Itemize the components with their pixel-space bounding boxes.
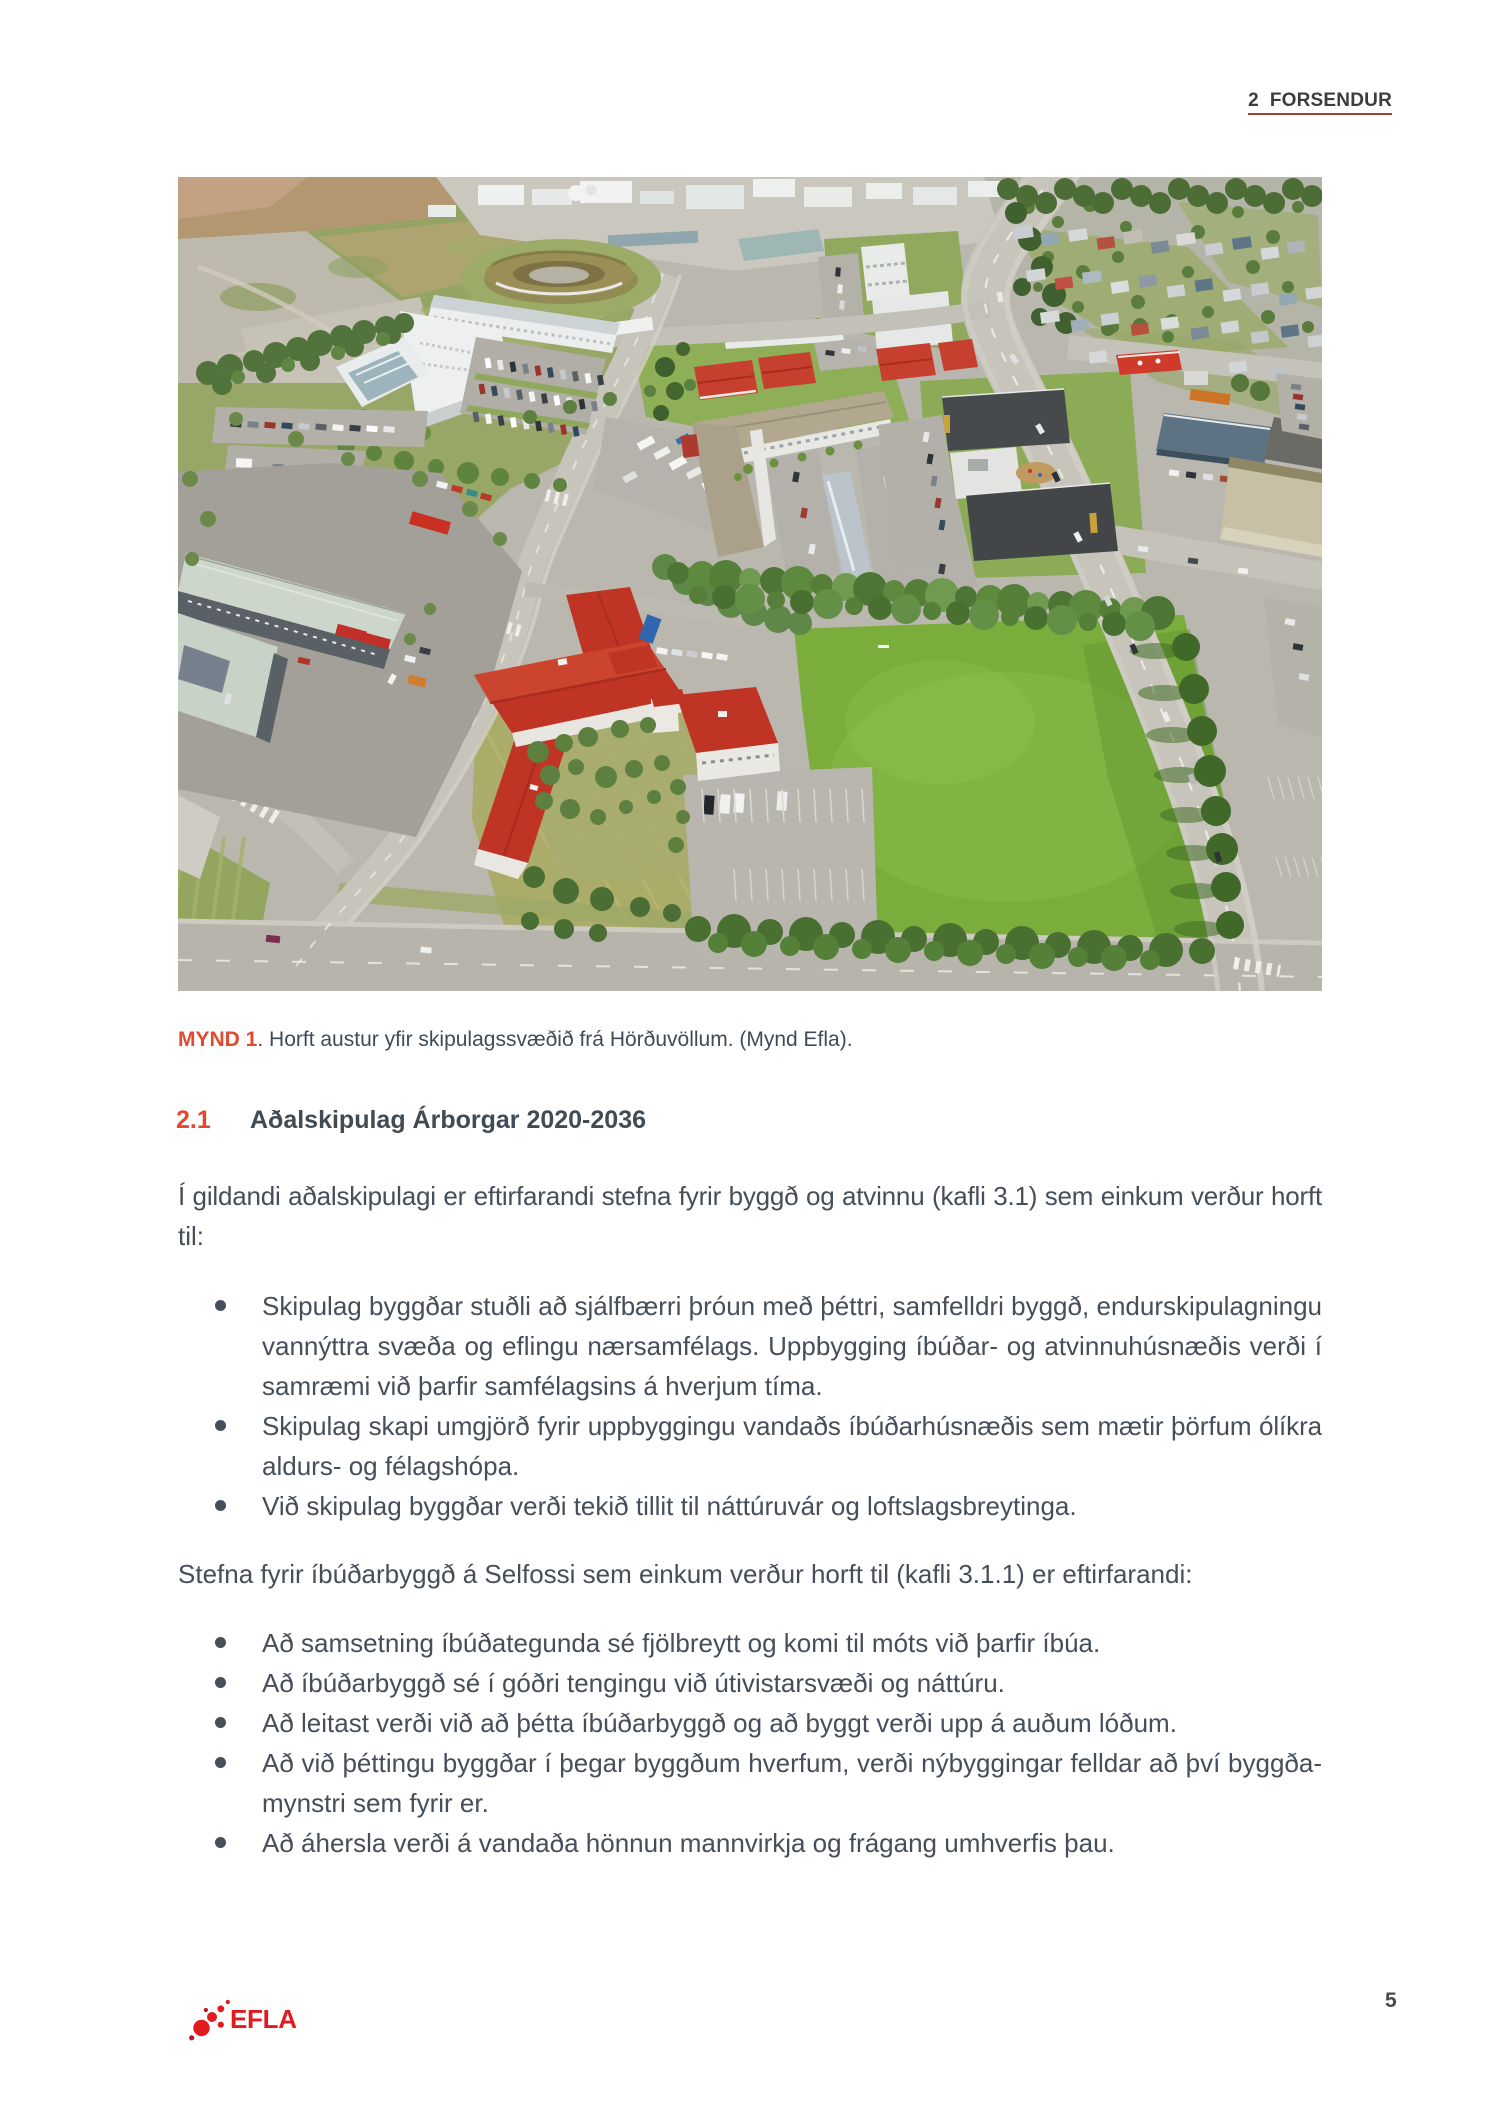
svg-text:EFLA: EFLA (230, 2004, 297, 2034)
